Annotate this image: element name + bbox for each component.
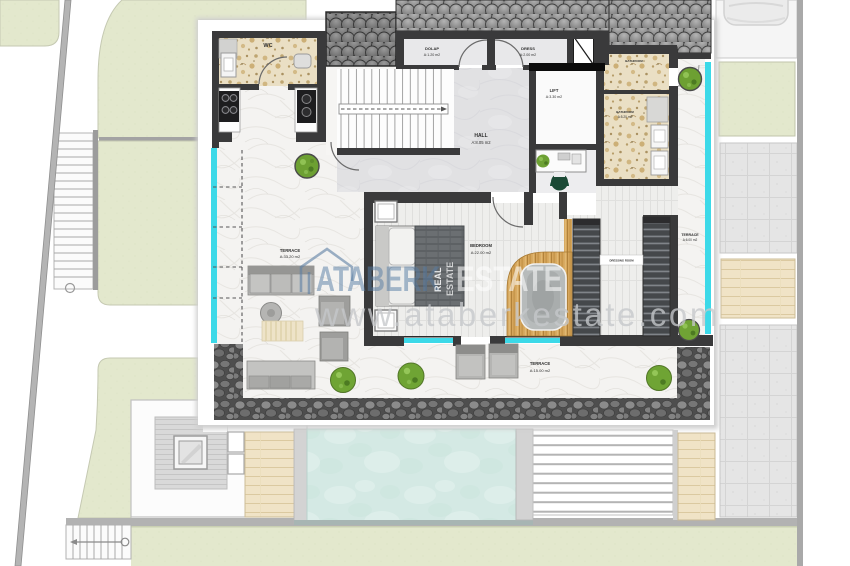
svg-text:BATHROOM: BATHROOM [625, 59, 643, 63]
svg-text:A:33.20 m2: A:33.20 m2 [280, 254, 301, 259]
svg-text:A:15.00 m2: A:15.00 m2 [530, 368, 551, 373]
svg-text:DRESS: DRESS [521, 46, 535, 51]
svg-text:A:6.00 m2: A:6.00 m2 [683, 238, 698, 242]
svg-text:LIFT: LIFT [550, 88, 559, 93]
svg-text:REAL: REAL [433, 267, 443, 292]
svg-text:DRESSING ROOM: DRESSING ROOM [609, 259, 634, 263]
svg-text:ESTATE: ESTATE [456, 259, 562, 299]
svg-text:TERRACE: TERRACE [530, 361, 550, 366]
svg-text:TERRACE: TERRACE [681, 233, 699, 237]
svg-text:A:22.00 m2: A:22.00 m2 [471, 250, 492, 255]
svg-text:ATABERK: ATABERK [316, 259, 441, 299]
svg-text:BEDROOM: BEDROOM [470, 243, 492, 248]
svg-text:TERRACE: TERRACE [280, 248, 300, 253]
svg-text:DOLAP: DOLAP [425, 46, 439, 51]
svg-text:A:2.00 m2: A:2.00 m2 [520, 53, 536, 57]
svg-text:www.ataberkestate.com: www.ataberkestate.com [314, 296, 720, 333]
svg-text:WC: WC [263, 43, 272, 49]
svg-text:HALL: HALL [474, 133, 487, 139]
svg-text:A:5.20 m2: A:5.20 m2 [618, 115, 633, 119]
svg-text:A:1.20 m2: A:1.20 m2 [424, 53, 440, 57]
svg-text:A:3.30 m2: A:3.30 m2 [546, 95, 562, 99]
svg-text:ESTATE: ESTATE [445, 262, 455, 296]
svg-text:A:8.05 m2: A:8.05 m2 [471, 140, 491, 145]
svg-text:BATHROOM: BATHROOM [616, 110, 634, 114]
